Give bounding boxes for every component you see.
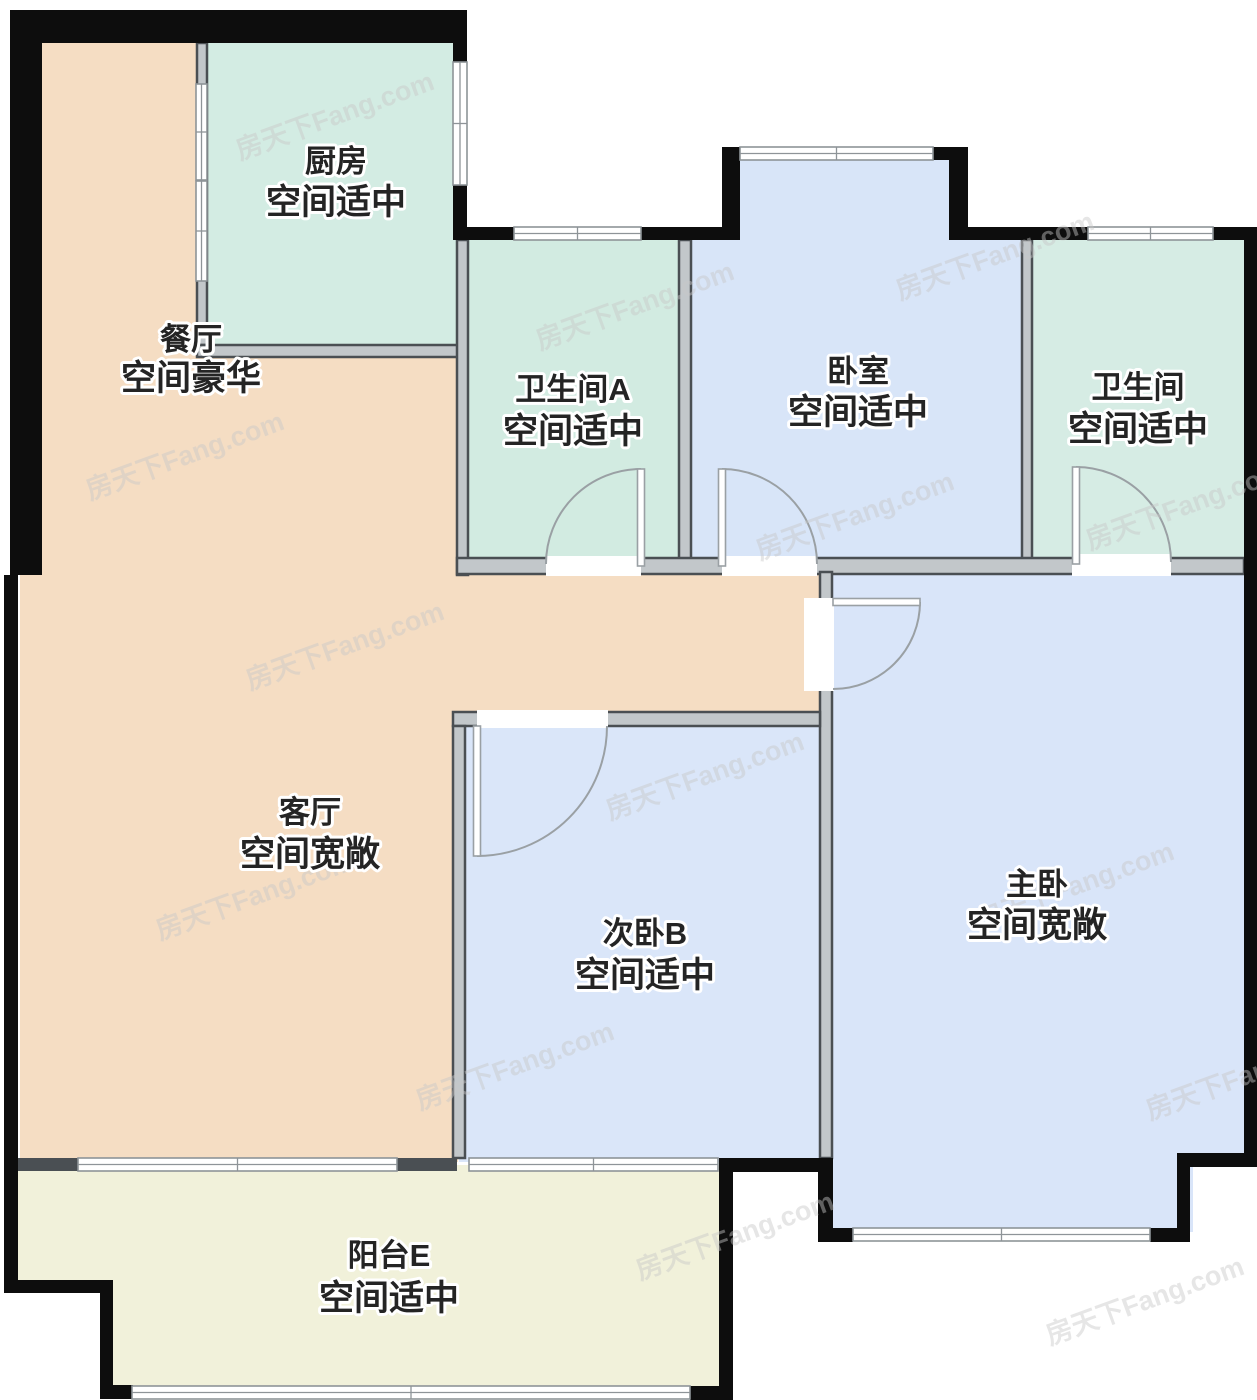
stub-wall (397, 1158, 457, 1171)
interior-wall (1022, 240, 1032, 572)
room-bedroom (728, 152, 954, 244)
door-gap (477, 710, 608, 728)
door-bedroom-b-leaf (474, 726, 481, 856)
room-sublabel-balcony: 空间适中 (319, 1279, 459, 1318)
door-gap (1072, 554, 1171, 576)
room-sublabel-master-bedroom: 空间宽敞 (967, 905, 1108, 945)
interior-wall (457, 240, 468, 575)
door-bath-right-leaf (1073, 467, 1080, 564)
exterior-wall (453, 227, 514, 240)
room-dining-living (20, 20, 205, 360)
room-sublabel-kitchen: 空间适中 (266, 183, 406, 222)
door-gap (804, 598, 834, 691)
exterior-wall (690, 1386, 733, 1400)
exterior-wall (719, 1158, 733, 1400)
floorplan-page: 房天下Fang.com房天下Fang.com房天下Fang.com房天下Fang… (0, 0, 1257, 1400)
room-label-kitchen: 厨房 (305, 144, 367, 179)
exterior-wall (722, 147, 740, 240)
room-sublabel-bedroom: 空间适中 (788, 393, 928, 432)
exterior-wall (10, 10, 42, 575)
exterior-wall (453, 43, 467, 62)
room-label-bedroom: 卧室 (827, 354, 889, 389)
room-dining-living (20, 712, 458, 1162)
exterior-wall (1150, 1228, 1190, 1242)
room-label-dining: 餐厅 (160, 322, 222, 357)
room-label-bedroom-b: 次卧B (603, 916, 687, 951)
room-sublabel-bedroom-b: 空间适中 (575, 956, 715, 995)
room-sublabel-living: 空间宽敞 (240, 834, 381, 874)
exterior-wall (949, 147, 968, 240)
room-sublabel-dining: 空间豪华 (121, 359, 261, 398)
exterior-wall (4, 575, 18, 1292)
door-bedroom-leaf (719, 469, 726, 566)
room-label-master-bedroom: 主卧 (1006, 867, 1068, 902)
room-label-living: 客厅 (279, 795, 341, 830)
exterior-wall (4, 1280, 113, 1293)
room-label-bath-a: 卫生间A (515, 372, 630, 407)
door-gap (546, 556, 641, 576)
exterior-wall (10, 10, 467, 43)
room-master-bedroom (827, 566, 1247, 1158)
interior-wall (197, 345, 467, 357)
door-bath-a-leaf (638, 469, 645, 566)
room-master-bedroom (827, 1150, 1193, 1232)
room-label-balcony: 阳台E (348, 1238, 431, 1273)
room-sublabel-bath-right: 空间适中 (1068, 410, 1208, 449)
exterior-wall (1244, 227, 1257, 1167)
door-master-leaf (833, 599, 920, 606)
exterior-wall (719, 1158, 833, 1172)
stub-wall (18, 1158, 78, 1171)
floorplan-image: 房天下Fang.com房天下Fang.com房天下Fang.com房天下Fang… (0, 0, 1257, 1400)
room-dining-living (20, 566, 826, 718)
exterior-wall (100, 1280, 113, 1399)
room-sublabel-bath-a: 空间适中 (503, 412, 643, 451)
room-label-bath-right: 卫生间 (1092, 370, 1185, 405)
